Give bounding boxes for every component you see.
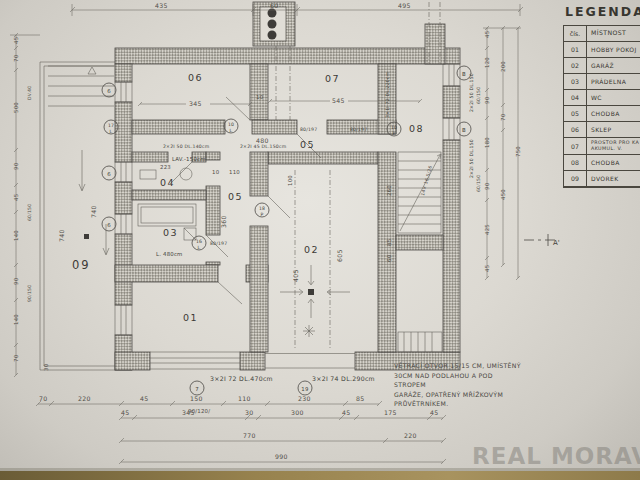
dim-l-70b: 70	[13, 354, 19, 362]
note-line: PRŮVĚTRNÍKEM.	[394, 399, 526, 409]
dim-chain-top: 435 60 495	[70, 2, 523, 16]
dim-85: 85	[386, 239, 392, 246]
dim-l-note2: 60/150	[27, 204, 32, 221]
lintel-e: 3×1I 72 DL.220cm	[385, 71, 390, 118]
dim-r-450: 450	[500, 189, 506, 200]
toilet-icon	[180, 168, 192, 180]
svg-text:P: P	[393, 131, 396, 136]
dim-r-70: 70	[500, 113, 506, 121]
room-label-03: 03	[163, 227, 178, 238]
dim-740-courtyard: 740	[90, 205, 97, 218]
note-line: VĚTRACÍ OTVOR 15/15 CM, UMÍSTĚNÝ	[394, 361, 526, 371]
dim-b1-85: 85	[356, 395, 364, 402]
window-left-2	[115, 162, 132, 182]
dim-b2-45b: 45	[342, 409, 350, 416]
dim-chain-right: 45 120 90 180 90 425 45 60/150 60/150 20…	[476, 26, 521, 280]
dim-b2-45c: 45	[430, 409, 438, 416]
svg-text:L: L	[198, 245, 201, 250]
room-label-09: 09	[72, 258, 91, 272]
dim-b2-30: 30	[245, 409, 253, 416]
lintel-f1: 2×2I 50 DL.150	[469, 73, 474, 112]
note-line: 30CM NAD PODLAHOU A POD STROPEM	[394, 371, 526, 390]
marker-19: 19	[298, 381, 312, 395]
legend-table: čís. MÍSTNOST 01 HOBBY POKOJ 02 GARÁŽ 03…	[563, 25, 640, 188]
dim-480: 480	[256, 137, 269, 144]
dim-l-90a: 90	[13, 162, 19, 170]
marker-6c: 6	[102, 217, 116, 231]
dim-r-90a: 90	[484, 96, 490, 104]
flue-circle	[268, 31, 277, 40]
section-marker: A'	[524, 234, 560, 247]
legend-row-02: 02 GARÁŽ	[564, 58, 640, 74]
legend-col-name: MÍSTNOST	[587, 27, 640, 39]
dim-b1-110: 110	[238, 395, 251, 402]
garage-door-opening	[265, 354, 355, 369]
stairs-spec: 14× 16,5/26	[420, 165, 433, 196]
door-swing-02	[268, 196, 290, 218]
note-line: GARÁŽE, OPATŘENÝ MŘÍŽKOVÝM	[394, 390, 526, 400]
legend-col-num: čís.	[564, 26, 587, 41]
dim-b1-220: 220	[78, 395, 91, 402]
legend-row-07: 07 PROSTOR PRO KA AKUMUL. V.	[564, 138, 640, 155]
dim-l-500: 500	[13, 102, 19, 113]
marker-6b: 6	[102, 166, 116, 180]
window-bottom-01	[150, 352, 240, 369]
marker-18: 18P	[255, 203, 269, 217]
room-label-08: 08	[409, 123, 424, 134]
dim-r-45b: 45	[484, 265, 490, 272]
dim-l-90b: 90	[13, 277, 19, 285]
dim-345: 345	[189, 100, 202, 107]
svg-text:B: B	[462, 127, 466, 133]
dim-b2-175: 175	[384, 409, 397, 416]
dim-405: 405	[292, 269, 299, 282]
dim-r-200: 200	[500, 61, 506, 72]
table-edge	[0, 471, 640, 480]
dim-b2-300: 300	[291, 409, 304, 416]
svg-text:19: 19	[301, 386, 309, 392]
staircase: 14× 16,5/26	[398, 152, 441, 233]
dim-b1-45: 45	[140, 395, 148, 402]
dim-l-140b: 140	[13, 314, 19, 325]
svg-text:L: L	[110, 129, 113, 134]
lintel-f2: 2×2I 50 DL.150	[469, 139, 474, 178]
svg-text:6: 6	[107, 88, 111, 94]
dim-top-495: 495	[398, 2, 411, 9]
legend-row-08: 08 CHODBA	[564, 155, 640, 171]
ventilation-note: VĚTRACÍ OTVOR 15/15 CM, UMÍSTĚNÝ 30CM NA…	[394, 361, 526, 409]
inner-walls	[115, 64, 443, 352]
dim-r-425: 425	[484, 224, 490, 235]
window-left-4	[115, 305, 132, 335]
dim-10b: 10	[212, 169, 220, 175]
svg-text:B: B	[462, 71, 466, 77]
dim-110: 110	[229, 169, 240, 175]
svg-text:L: L	[230, 128, 233, 133]
legend-row-06: 06 SKLEP	[564, 122, 640, 138]
section-label: A'	[553, 239, 560, 247]
dim-l-30: 30	[43, 363, 49, 371]
svg-text:6: 6	[107, 171, 111, 177]
dim-chain-left: 45 70 500 90 45 140 90 140 70 DV.40 60/1…	[10, 33, 49, 377]
dim-r-120: 120	[484, 57, 490, 68]
room-label-06: 06	[188, 72, 203, 83]
dim-l-70a: 70	[13, 54, 19, 62]
dim-605: 605	[336, 249, 343, 262]
marker-10L: 10L	[224, 119, 238, 133]
dim-223: 223	[160, 164, 171, 170]
dim-b2-45a: 45	[121, 409, 129, 416]
svg-text:17: 17	[108, 123, 114, 128]
marker-16: 16L	[192, 236, 206, 250]
window-left-1	[115, 82, 132, 102]
flue-circle	[268, 20, 277, 29]
marker-7: 7	[190, 381, 204, 395]
dim-chain-bottom: 70 220 45 150 90/120/ 110 230 85 45 345 …	[36, 395, 446, 464]
outer-walls	[115, 48, 460, 370]
floor-plan-drawing: 09 740 740	[0, 0, 640, 470]
label-tub-length: L. 480cm	[156, 251, 183, 257]
dim-260: 260	[386, 185, 392, 196]
vent-symbol	[303, 325, 315, 337]
svg-text:P: P	[261, 212, 264, 217]
dim-100: 100	[287, 175, 293, 186]
dim-60: 60	[386, 254, 392, 262]
legend-row-04: 04 WC	[564, 90, 640, 106]
dim-b1-150: 150	[190, 395, 203, 402]
legend-row-05: 05 CHODBA	[564, 106, 640, 122]
legend-row-09: 09 DVOREK	[564, 171, 640, 187]
dim-b1-230: 230	[298, 395, 311, 402]
dim-360: 360	[220, 215, 227, 228]
watermark: REAL MORAVIA	[472, 443, 640, 469]
room-label-01: 01	[183, 312, 198, 323]
label-lav: LAV.-150cm	[172, 156, 206, 162]
marker-B2: B	[457, 122, 471, 136]
legend-header-row: čís. MÍSTNOST	[564, 26, 640, 42]
dim-b2-345: 345	[182, 409, 195, 416]
dim-top-435: 435	[155, 2, 168, 9]
dim-top-60: 60	[270, 2, 278, 9]
svg-text:10: 10	[391, 125, 397, 130]
dim-l-45b: 45	[13, 194, 19, 201]
svg-text:18: 18	[259, 206, 265, 211]
lintel-d: 3×2I 74 DL.290cm	[312, 375, 375, 382]
window-grid-08	[398, 332, 442, 352]
dim-r-180: 180	[484, 137, 490, 148]
legend-panel: LEGENDA čís. MÍSTNOST 01 HOBBY POKOJ 02 …	[563, 4, 640, 188]
dim-b1-70: 70	[39, 395, 47, 402]
dim-r-note1: 60/150	[476, 87, 481, 104]
annotations: LAV.-150cm L. 480cm 80/197 80/197 80/197…	[156, 71, 474, 382]
courtyard-post	[84, 234, 89, 239]
window-left-3	[115, 214, 132, 234]
door-size-a: 80/197	[300, 127, 317, 132]
position-markers: 6 17L 6 6 7 19 10L 10P 18P 16L B B	[102, 66, 471, 395]
svg-text:10: 10	[228, 122, 234, 127]
room-label-05: 05	[300, 139, 315, 150]
tub-icon	[138, 204, 196, 226]
svg-text:6: 6	[107, 222, 111, 228]
floor-drain	[308, 289, 314, 295]
dim-l-45a: 45	[13, 37, 19, 44]
vent-stack	[425, 2, 445, 64]
dim-l-140a: 140	[13, 230, 19, 241]
svg-text:16: 16	[196, 239, 202, 244]
dim-b4-990: 990	[275, 453, 288, 460]
blueprint-photo: 09 740 740	[0, 0, 640, 480]
dim-r-750: 750	[515, 146, 521, 157]
room-label-05b: 05	[228, 191, 243, 202]
window-right-2	[443, 118, 460, 140]
room-label-07: 07	[325, 73, 340, 84]
dim-545: 545	[332, 97, 345, 104]
door-swing-03	[206, 235, 228, 257]
dim-10: 10	[256, 94, 264, 100]
door-swing-01	[218, 282, 242, 304]
dim-r-note2: 60/150	[476, 175, 481, 192]
lintel-b: 2×2I 45 DL.150cm	[240, 144, 287, 149]
dim-r-90b: 90	[484, 182, 490, 190]
svg-text:7: 7	[195, 386, 199, 392]
dim-b3-770: 770	[243, 432, 256, 439]
room-label-02: 02	[304, 244, 319, 255]
door-size-b: 80/197	[350, 127, 367, 132]
lintel-a: 2×2I 50 DL.140cm	[163, 144, 210, 149]
legend-title: LEGENDA	[565, 4, 640, 19]
sink-icon	[140, 170, 156, 179]
dim-r-45a: 45	[484, 31, 490, 38]
room-label-04: 04	[160, 177, 175, 188]
door-size-c: 80/197	[210, 241, 227, 246]
dim-l-note3: 90/150	[27, 285, 32, 302]
marker-6a: 6	[102, 83, 116, 97]
dim-740-left: 740	[58, 229, 65, 242]
door-swing-06	[226, 97, 250, 120]
dim-b3-220: 220	[404, 432, 417, 439]
dim-l-note1: DV.40	[27, 86, 32, 100]
marker-B1: B	[457, 66, 471, 80]
legend-row-01: 01 HOBBY POKOJ	[564, 42, 640, 58]
legend-row-03: 03 PRÁDELNA	[564, 74, 640, 90]
lintel-c: 3×2I 72 DL.470cm	[210, 375, 273, 382]
